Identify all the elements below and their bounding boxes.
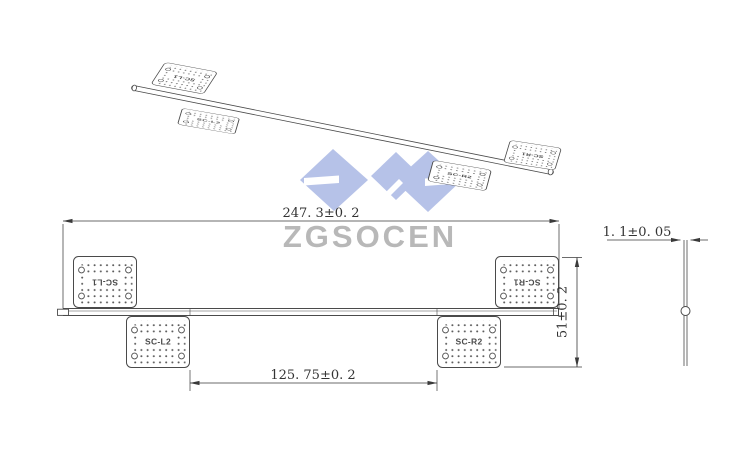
front-plate-label: SC-R1 [513, 278, 540, 288]
dim-inner-width-text: 125. 75±0. 2 [270, 368, 355, 383]
dim-height-text: 51±0. 2 [556, 286, 571, 338]
front-plate-label: SC-L2 [145, 337, 171, 347]
dim-inner-width: 125. 75±0. 2 [190, 368, 437, 391]
bar-left-end-tab [58, 309, 69, 315]
front-bar [58, 309, 559, 316]
dim-overall-width-text: 247. 3±0. 2 [282, 206, 359, 221]
front-plate-sc-r1: SC-R1 [496, 257, 559, 308]
side-profile-hole [681, 307, 690, 316]
front-plate-label: SC-L1 [92, 278, 118, 288]
dim-thickness-text: 1. 1±0. 05 [603, 225, 672, 240]
dim-thickness: 1. 1±0. 05 [603, 225, 708, 240]
side-view: 1. 1±0. 05 [603, 225, 708, 366]
iso-plate-sc-l1: SC-L1 [151, 62, 218, 94]
front-plate-label: SC-R2 [455, 337, 482, 347]
drawing-svg: ZGSOCEN SC-L2 SC-R2 SC-L1 SC-R1 [0, 0, 750, 475]
engineering-drawing-page: ZGSOCEN SC-L2 SC-R2 SC-L1 SC-R1 [0, 0, 750, 475]
front-plate-sc-r2: SC-R2 [438, 317, 501, 368]
front-plate-sc-l1: SC-L1 [74, 257, 137, 308]
front-plate-sc-l2: SC-L2 [127, 317, 190, 368]
dim-overall-width: 247. 3±0. 2 [63, 206, 559, 221]
watermark-brand-text: ZGSOCEN [283, 219, 457, 254]
iso-plate-sc-l2: SC-L2 [178, 108, 240, 134]
